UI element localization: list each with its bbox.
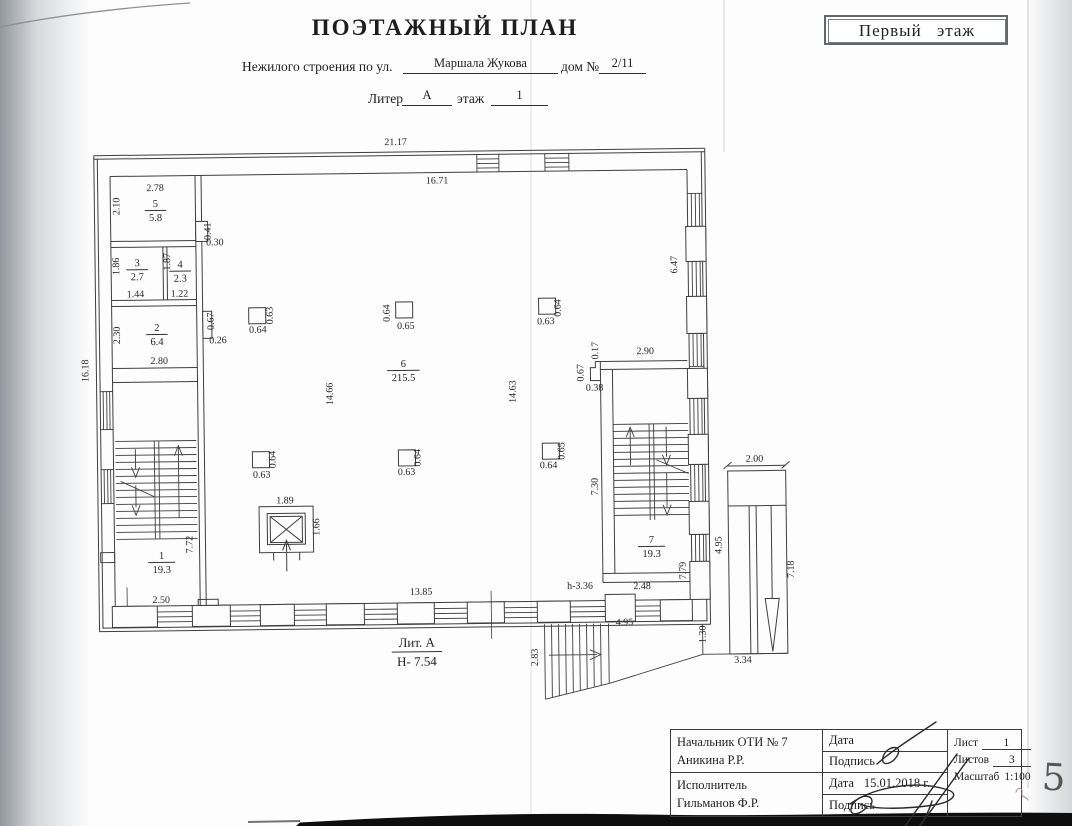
liter-value: А <box>402 88 452 106</box>
exterior-stair <box>545 621 789 699</box>
dimension-label: 4.95 <box>713 536 724 554</box>
scan-artifacts <box>0 0 1028 814</box>
floor-badge: Первый этаж <box>824 15 1008 45</box>
sheet-value: 1 <box>982 737 1031 750</box>
address-value: Маршала Жукова <box>403 56 558 74</box>
executor-role: Исполнитель <box>677 776 816 794</box>
scanned-floor-plan-page: 21.1716.7116.182.782.100.410.301.861.871… <box>0 0 1072 826</box>
dimension-label: 0.65 <box>556 442 567 460</box>
liter-annotation-bottom: Н- 7.54 <box>397 654 437 669</box>
stairs-room1 <box>115 440 197 539</box>
dimension-label: 0.64 <box>249 325 267 336</box>
exterior-ramp <box>724 461 792 654</box>
dimension-label: 7.72 <box>184 536 195 554</box>
dimension-label: h-3.36 <box>567 581 593 592</box>
room-area: 5.8 <box>149 213 162 224</box>
dimension-label: 7.30 <box>590 478 601 496</box>
approver-name: Аникина Р.Р. <box>677 751 816 769</box>
title-block-sheet-info: Лист 1 Листов 3 Масштаб 1:100 <box>948 730 1037 817</box>
elevator-shaft <box>259 506 314 572</box>
dimension-label: 1.30 <box>698 625 709 643</box>
dimension-label: 1.87 <box>162 253 173 271</box>
dimension-label: 2.80 <box>150 356 168 367</box>
dimension-label: 2.00 <box>746 454 764 465</box>
room-area: 19.3 <box>153 565 172 576</box>
floor-plan-drawing: 21.1716.7116.182.782.100.410.301.861.871… <box>0 0 1072 826</box>
liter-label: Литер <box>368 91 403 107</box>
room-area: 2.3 <box>174 274 187 285</box>
dimension-label: 2.50 <box>152 595 170 606</box>
dimension-label: 0.63 <box>398 467 416 478</box>
dimension-label: 2.48 <box>633 581 651 592</box>
room-number: 7 <box>649 535 654 546</box>
room-area: 2.7 <box>131 272 144 283</box>
scale-value: 1:100 <box>1004 771 1030 783</box>
dimension-label: 2.10 <box>111 198 122 216</box>
dimension-label: 0.30 <box>206 237 224 248</box>
dimension-label: 0.67 <box>575 364 586 382</box>
room-number: 1 <box>159 551 164 562</box>
room-number: 3 <box>134 258 139 269</box>
dimension-label: 16.71 <box>426 175 449 186</box>
signature-label: Подпись <box>829 754 875 769</box>
title-block-names: Начальник ОТИ № 7 Аникина Р.Р. Исполните… <box>671 730 823 817</box>
dimension-label: 0.65 <box>397 321 415 332</box>
dimension-label: 14.66 <box>325 383 336 406</box>
page-title: ПОЭТАЖНЫЙ ПЛАН <box>295 15 595 41</box>
address-label: Нежилого строения по ул. <box>242 59 392 75</box>
room-area: 215.5 <box>392 373 416 384</box>
dimension-label: 0.64 <box>382 304 393 322</box>
dimension-label: 0.26 <box>209 335 227 346</box>
dimension-label: 1.22 <box>171 289 189 300</box>
dimension-label: 0.67 <box>206 312 217 330</box>
approver-role: Начальник ОТИ № 7 <box>677 733 816 751</box>
sheets-value: 3 <box>993 754 1031 767</box>
house-number-label: дом № <box>561 59 599 75</box>
dimension-label: 0.63 <box>265 307 276 325</box>
dimension-label: 2.90 <box>636 346 654 357</box>
dimension-label: 3.34 <box>734 655 752 666</box>
room-number: 4 <box>177 260 183 271</box>
dimension-label: 16.18 <box>80 360 91 383</box>
dimension-label: 0.64 <box>412 449 423 467</box>
title-block-signatures: Дата Подпись Дата 15.01.2018 г. Подпись <box>823 730 948 817</box>
room-number: 2 <box>154 323 159 334</box>
date-label: Дата <box>829 733 854 748</box>
room-number: 6 <box>401 359 406 370</box>
approver-cell: Начальник ОТИ № 7 Аникина Р.Р. <box>671 730 822 773</box>
liter-annotation-top: Лит. А <box>398 635 435 650</box>
dimension-label: 1.86 <box>111 258 122 276</box>
dimension-label: 6.47 <box>669 256 680 274</box>
exterior-walls <box>94 148 711 631</box>
dimension-label: 0.63 <box>537 316 555 327</box>
dimension-label: 13.85 <box>410 587 433 598</box>
floor-number-label: этаж <box>457 91 484 107</box>
sheet-label: Лист <box>954 737 978 749</box>
dimension-label: 0.64 <box>553 299 564 317</box>
scale-label: Масштаб <box>954 771 999 783</box>
house-number-value: 2/11 <box>599 56 646 74</box>
dimension-label: 1.44 <box>127 289 145 300</box>
executor-cell: Исполнитель Гильманов Ф.Р. <box>671 773 822 816</box>
executor-name: Гильманов Ф.Р. <box>677 794 816 812</box>
dimension-label: 0.38 <box>586 383 604 394</box>
dimension-label: 2.30 <box>112 327 123 345</box>
date-value: 15.01.2018 г. <box>864 776 930 791</box>
date-label: Дата <box>829 776 854 791</box>
dimension-label: 0.17 <box>590 342 601 360</box>
dimension-label: 7.79 <box>678 562 689 580</box>
dimension-label: 0.63 <box>253 470 271 481</box>
dimension-label: 7.18 <box>786 560 797 578</box>
floor-badge-label: Первый этаж <box>828 19 1006 43</box>
dimension-label: 4.95 <box>616 617 634 628</box>
dimension-label: 2.78 <box>146 183 164 194</box>
dimension-label: 14.63 <box>508 380 519 403</box>
signature-label: Подпись <box>829 798 875 813</box>
handwritten-page-number: 5 <box>1041 755 1067 799</box>
title-block: Начальник ОТИ № 7 Аникина Р.Р. Исполните… <box>670 729 1022 817</box>
sheets-label: Листов <box>954 754 989 766</box>
room-area: 6.4 <box>150 337 164 348</box>
dimension-label: 1.89 <box>276 495 294 506</box>
dimension-label: 2.83 <box>530 649 541 667</box>
stairs-room7 <box>613 423 689 520</box>
dimension-label: 0.64 <box>540 460 558 471</box>
dimension-label: 21.17 <box>384 137 407 148</box>
dimension-label: 0.64 <box>267 451 278 469</box>
room-number: 5 <box>153 199 158 210</box>
liter-annotation-bar <box>392 652 442 653</box>
room-area: 19.3 <box>642 549 661 560</box>
floor-number-value: 1 <box>491 88 548 106</box>
dimension-label: 1.66 <box>311 518 322 536</box>
